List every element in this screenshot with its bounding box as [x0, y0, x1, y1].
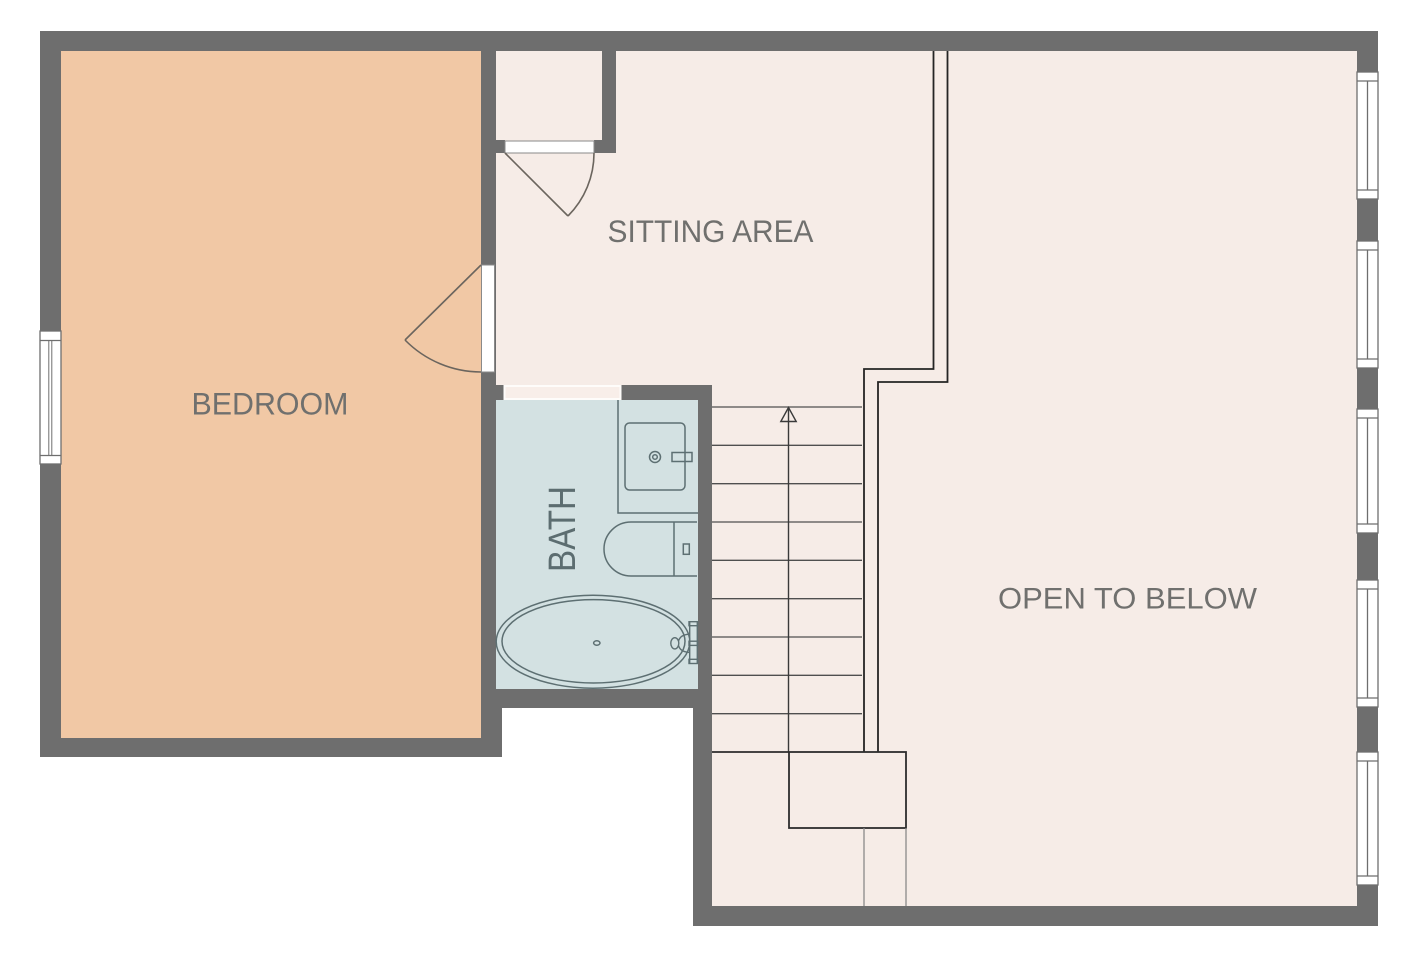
svg-text:BATH: BATH	[542, 486, 584, 572]
svg-text:OPEN TO BELOW: OPEN TO BELOW	[998, 583, 1257, 616]
svg-text:BEDROOM: BEDROOM	[192, 386, 349, 422]
svg-text:SITTING AREA: SITTING AREA	[608, 213, 814, 249]
